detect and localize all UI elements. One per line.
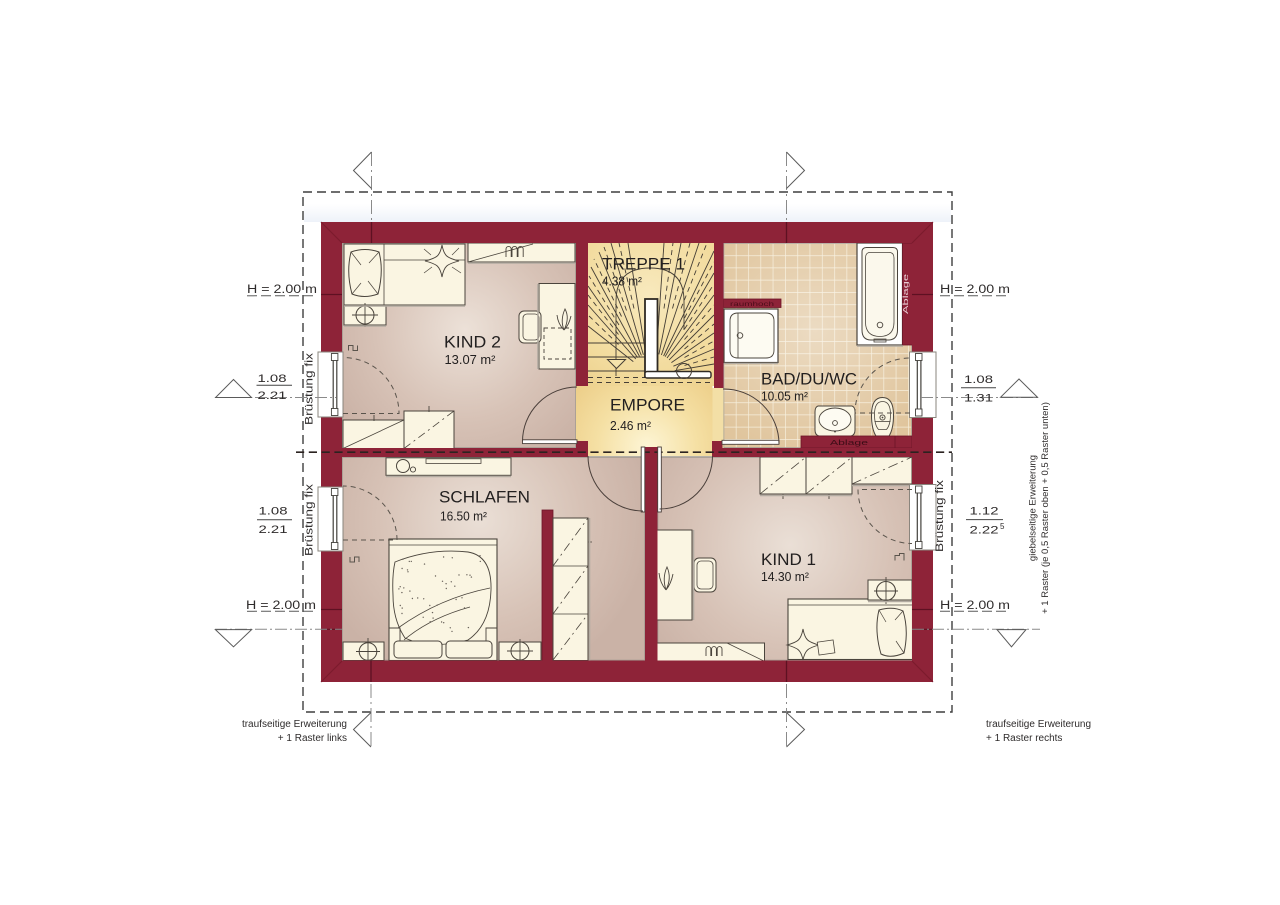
svg-text:2.21: 2.21: [259, 524, 288, 536]
svg-text:Ablage: Ablage: [901, 274, 910, 314]
svg-text:H = 2.00 m: H = 2.00 m: [247, 284, 317, 296]
svg-text:Brüstung fix: Brüstung fix: [934, 479, 946, 552]
svg-text:Brüstung fix: Brüstung fix: [304, 483, 316, 556]
svg-text:EMPORE: EMPORE: [610, 397, 685, 415]
svg-text:2.46 m²: 2.46 m²: [610, 419, 651, 433]
svg-text:+ 1 Raster rechts: + 1 Raster rechts: [986, 733, 1062, 744]
svg-text:TREPPE 1: TREPPE 1: [602, 256, 685, 274]
svg-text:H = 2.00 m: H = 2.00 m: [940, 284, 1010, 296]
svg-text:1.12: 1.12: [970, 506, 999, 518]
svg-text:KIND 1: KIND 1: [761, 551, 816, 569]
svg-text:+ 1 Raster (je 0,5 Raster oben: + 1 Raster (je 0,5 Raster oben + 0,5 Ras…: [1040, 402, 1051, 614]
svg-text:2.21: 2.21: [258, 390, 287, 402]
svg-text:H = 2.00 m: H = 2.00 m: [940, 600, 1010, 612]
svg-text:16.50 m²: 16.50 m²: [440, 510, 487, 524]
svg-text:14.30 m²: 14.30 m²: [761, 570, 809, 584]
svg-text:Ablage: Ablage: [830, 438, 868, 447]
svg-text:10.05 m²: 10.05 m²: [761, 390, 808, 404]
svg-text:1.08: 1.08: [259, 506, 288, 518]
svg-text:SCHLAFEN: SCHLAFEN: [439, 489, 530, 507]
svg-text:giebelseitige Erweiterung: giebelseitige Erweiterung: [1028, 455, 1039, 561]
svg-text:traufseitige Erweiterung: traufseitige Erweiterung: [986, 719, 1091, 730]
svg-text:Brüstung fix: Brüstung fix: [304, 352, 316, 425]
svg-text:1.08: 1.08: [964, 374, 993, 386]
svg-text:4.38 m²: 4.38 m²: [602, 275, 642, 289]
svg-text:1.31: 1.31: [964, 393, 993, 405]
svg-text:raumhoch: raumhoch: [730, 301, 775, 308]
svg-text:+ 1 Raster links: + 1 Raster links: [278, 733, 347, 744]
svg-text:H = 2.00 m: H = 2.00 m: [246, 600, 316, 612]
svg-text:traufseitige Erweiterung: traufseitige Erweiterung: [242, 719, 347, 730]
svg-text:2.22: 2.22: [970, 525, 999, 537]
svg-text:BAD/DU/WC: BAD/DU/WC: [761, 371, 857, 389]
svg-text:5: 5: [1000, 522, 1005, 531]
svg-text:KIND 2: KIND 2: [444, 334, 501, 352]
svg-text:13.07 m²: 13.07 m²: [445, 353, 496, 367]
svg-text:1.08: 1.08: [258, 373, 287, 385]
